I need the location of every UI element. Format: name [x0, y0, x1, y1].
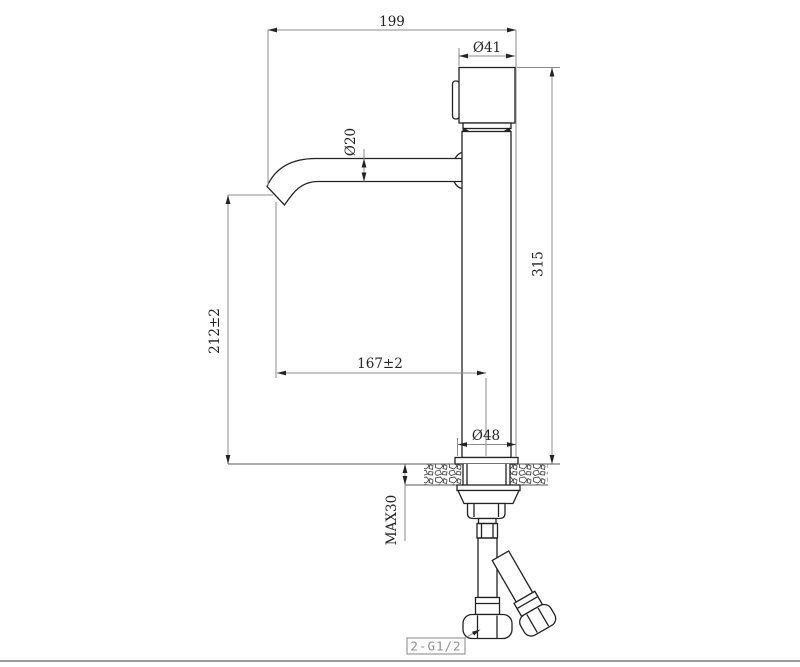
dim-315-text: 315 [531, 251, 547, 277]
dimension-spout-reach: 167±2 [276, 202, 486, 456]
knurled-fitting-edges [482, 524, 494, 539]
base-flange [455, 458, 518, 465]
dimension-total-height: 315 [517, 68, 560, 465]
hose-neck [479, 519, 497, 524]
dim-20-text: Ø20 [343, 128, 359, 156]
dim-199-arrow-left [268, 28, 277, 33]
dim-167-lines [276, 202, 486, 456]
dim-41-text: Ø41 [473, 40, 501, 56]
valve-body-bottom [468, 504, 506, 519]
dim-167-text: 167±2 [357, 356, 403, 372]
dimension-spout-height: 212±2 [207, 195, 273, 464]
dim-199-text: 199 [379, 14, 405, 30]
dim-199-arrow-right [507, 28, 516, 33]
mounting-washer [457, 485, 520, 491]
faucet-outline [267, 68, 518, 465]
dim-41-arrow-right [506, 54, 515, 59]
shank-fill [463, 464, 510, 485]
dim-48-text: Ø48 [472, 428, 500, 444]
dim-41-arrow-left [459, 54, 468, 59]
dim-167-arrow-left [277, 371, 286, 376]
dim-212-arrow-down [226, 455, 231, 464]
technical-drawing-page: 199 Ø41 Ø20 315 212±2 167±2 [0, 0, 800, 667]
braided-hose-vertical [478, 538, 497, 598]
dim-max30-arrow-down [403, 476, 408, 485]
mounting-locknut [458, 491, 519, 504]
dim-max30-arrow-up [403, 464, 408, 473]
counter-hatch-right [511, 465, 548, 485]
dim-max30-text: MAX30 [384, 495, 400, 545]
knurled-fitting [477, 524, 498, 539]
faucet-handle [459, 68, 515, 124]
dimension-max-thickness: MAX30 [384, 464, 407, 545]
counter-section [228, 464, 560, 485]
faucet-technical-drawing: 199 Ø41 Ø20 315 212±2 167±2 [0, 0, 800, 667]
callout-text: 2-G1/2 [410, 639, 461, 654]
dim-212-text: 212±2 [207, 308, 223, 354]
under-counter-assembly [457, 485, 559, 639]
vertical-hose-collar [476, 598, 500, 615]
dimension-handle-diameter: Ø41 [459, 40, 515, 66]
counter-hatch-left [424, 465, 462, 485]
dim-212-arrow-up [226, 195, 231, 204]
dim-212-lines [228, 195, 273, 464]
dim-315-arrow-up [550, 68, 555, 77]
handle-skirt [463, 123, 511, 129]
dim-315-arrow-down [550, 455, 555, 464]
